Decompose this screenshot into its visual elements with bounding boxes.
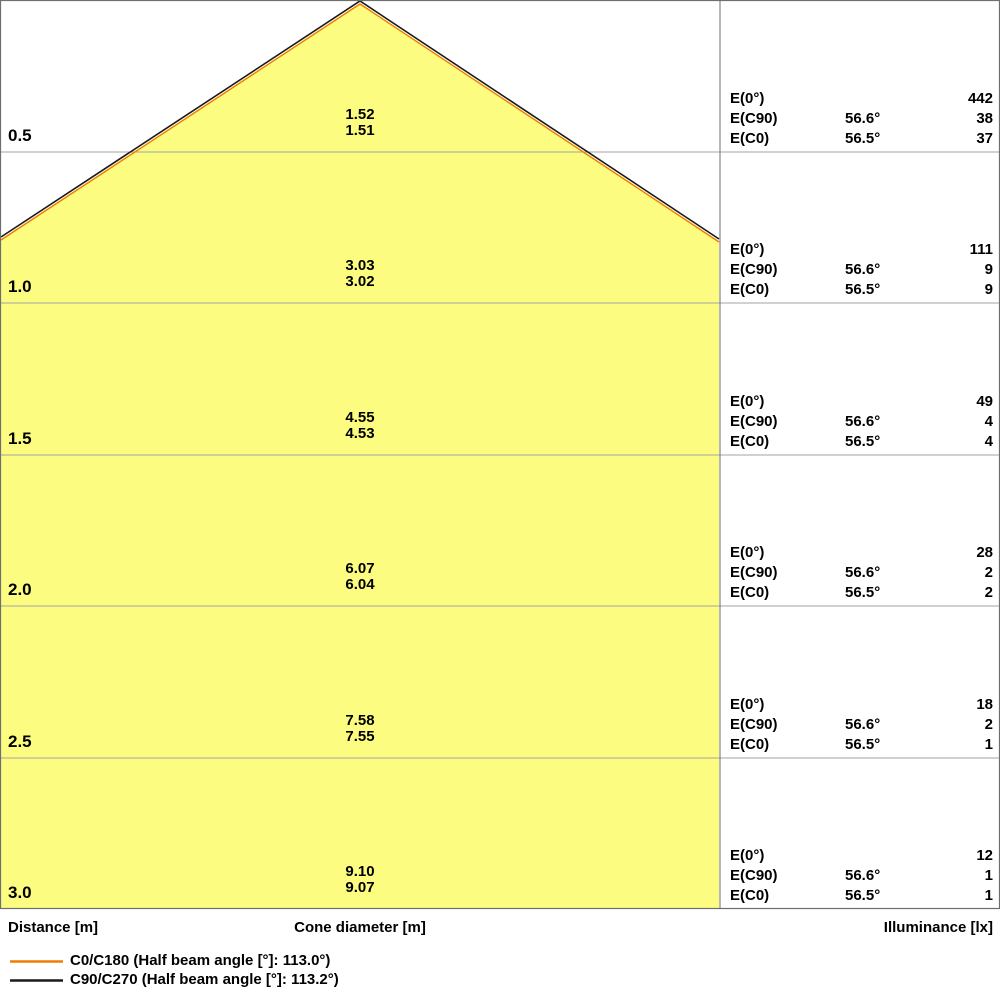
illuminance-label: E(C0) bbox=[730, 583, 769, 603]
cone-diameter-c90: 6.07 bbox=[260, 561, 460, 577]
illuminance-block: E(0°) 12 E(C90) 56.6° 1 E(C0) 56.5° 1 bbox=[730, 846, 993, 906]
illuminance-label: E(0°) bbox=[730, 89, 764, 109]
illuminance-value: 1 bbox=[985, 735, 993, 755]
cone-diameter-c0: 3.02 bbox=[260, 274, 460, 290]
distance-label: 2.0 bbox=[8, 580, 32, 600]
illuminance-row: E(0°) 442 bbox=[730, 89, 993, 109]
illuminance-row: E(C90) 56.6° 38 bbox=[730, 109, 993, 129]
illuminance-row: E(0°) 12 bbox=[730, 846, 993, 866]
illuminance-value: 9 bbox=[985, 260, 993, 280]
illuminance-angle: 56.5° bbox=[845, 583, 880, 603]
illuminance-block: E(0°) 18 E(C90) 56.6° 2 E(C0) 56.5° 1 bbox=[730, 695, 993, 755]
illuminance-angle: 56.6° bbox=[845, 563, 880, 583]
illuminance-label: E(C90) bbox=[730, 260, 778, 280]
illuminance-label: E(C90) bbox=[730, 412, 778, 432]
illuminance-angle: 56.6° bbox=[845, 412, 880, 432]
illuminance-label: E(0°) bbox=[730, 543, 764, 563]
illuminance-row: E(0°) 49 bbox=[730, 392, 993, 412]
illuminance-label: E(0°) bbox=[730, 846, 764, 866]
illuminance-value: 1 bbox=[985, 886, 993, 906]
legend-line-c0-c180 bbox=[10, 960, 63, 963]
illuminance-angle: 56.5° bbox=[845, 886, 880, 906]
illuminance-row: E(C90) 56.6° 2 bbox=[730, 715, 993, 735]
illuminance-value: 28 bbox=[976, 543, 993, 563]
illuminance-block: E(0°) 442 E(C90) 56.6° 38 E(C0) 56.5° 37 bbox=[730, 89, 993, 149]
distance-label: 2.5 bbox=[8, 732, 32, 752]
cone-diameter-c0: 4.53 bbox=[260, 426, 460, 442]
illuminance-value: 38 bbox=[976, 109, 993, 129]
illuminance-label: E(0°) bbox=[730, 392, 764, 412]
illuminance-value: 4 bbox=[985, 432, 993, 452]
illuminance-row: E(0°) 18 bbox=[730, 695, 993, 715]
cone-diameter-values: 9.10 9.07 bbox=[260, 864, 460, 896]
illuminance-row: E(C0) 56.5° 37 bbox=[730, 129, 993, 149]
illuminance-value: 4 bbox=[985, 412, 993, 432]
illuminance-row: E(C0) 56.5° 4 bbox=[730, 432, 993, 452]
light-cone-diagram: 0.5 1.52 1.51 E(0°) 442 E(C90) 56.6° 38 … bbox=[0, 0, 1000, 1000]
illuminance-label: E(C0) bbox=[730, 735, 769, 755]
illuminance-label: E(C0) bbox=[730, 129, 769, 149]
illuminance-angle: 56.5° bbox=[845, 129, 880, 149]
illuminance-row: E(C0) 56.5° 2 bbox=[730, 583, 993, 603]
cone-diameter-c90: 3.03 bbox=[260, 258, 460, 274]
illuminance-value: 2 bbox=[985, 563, 993, 583]
cone-diameter-c0: 6.04 bbox=[260, 577, 460, 593]
illuminance-block: E(0°) 111 E(C90) 56.6° 9 E(C0) 56.5° 9 bbox=[730, 240, 993, 300]
cone-diameter-values: 7.58 7.55 bbox=[260, 713, 460, 745]
illuminance-value: 442 bbox=[968, 89, 993, 109]
illuminance-label: E(C90) bbox=[730, 109, 778, 129]
illuminance-angle: 56.6° bbox=[845, 260, 880, 280]
illuminance-row: E(0°) 111 bbox=[730, 240, 993, 260]
illuminance-value: 12 bbox=[976, 846, 993, 866]
distance-label: 3.0 bbox=[8, 883, 32, 903]
illuminance-angle: 56.5° bbox=[845, 280, 880, 300]
illuminance-row: E(C0) 56.5° 1 bbox=[730, 735, 993, 755]
illuminance-angle: 56.5° bbox=[845, 735, 880, 755]
illuminance-block: E(0°) 49 E(C90) 56.6° 4 E(C0) 56.5° 4 bbox=[730, 392, 993, 452]
illuminance-angle: 56.6° bbox=[845, 109, 880, 129]
illuminance-row: E(C90) 56.6° 1 bbox=[730, 866, 993, 886]
legend-label-c90-c270: C90/C270 (Half beam angle [°]: 113.2°) bbox=[70, 971, 339, 989]
cone-diameter-values: 4.55 4.53 bbox=[260, 410, 460, 442]
illuminance-label: E(0°) bbox=[730, 240, 764, 260]
illuminance-row: E(C0) 56.5° 1 bbox=[730, 886, 993, 906]
illuminance-row: E(C0) 56.5° 9 bbox=[730, 280, 993, 300]
illuminance-label: E(C0) bbox=[730, 886, 769, 906]
illuminance-value: 37 bbox=[976, 129, 993, 149]
illuminance-label: E(C90) bbox=[730, 866, 778, 886]
illuminance-label: E(C0) bbox=[730, 432, 769, 452]
illuminance-angle: 56.6° bbox=[845, 715, 880, 735]
cone-diameter-c90: 4.55 bbox=[260, 410, 460, 426]
illuminance-axis-label: Illuminance [lx] bbox=[884, 919, 993, 937]
illuminance-row: E(C90) 56.6° 2 bbox=[730, 563, 993, 583]
illuminance-label: E(C0) bbox=[730, 280, 769, 300]
illuminance-value: 1 bbox=[985, 866, 993, 886]
illuminance-label: E(0°) bbox=[730, 695, 764, 715]
cone-diameter-c0: 9.07 bbox=[260, 880, 460, 896]
distance-axis-label: Distance [m] bbox=[8, 919, 98, 937]
illuminance-value: 18 bbox=[976, 695, 993, 715]
cone-diameter-values: 1.52 1.51 bbox=[260, 107, 460, 139]
illuminance-row: E(C90) 56.6° 4 bbox=[730, 412, 993, 432]
illuminance-value: 111 bbox=[970, 240, 993, 260]
distance-label: 1.0 bbox=[8, 277, 32, 297]
cone-diameter-axis-label: Cone diameter [m] bbox=[260, 919, 460, 937]
illuminance-angle: 56.6° bbox=[845, 866, 880, 886]
distance-label: 0.5 bbox=[8, 126, 32, 146]
illuminance-value: 9 bbox=[985, 280, 993, 300]
illuminance-value: 2 bbox=[985, 715, 993, 735]
illuminance-angle: 56.5° bbox=[845, 432, 880, 452]
legend-line-c90-c270 bbox=[10, 979, 63, 982]
cone-diameter-c0: 1.51 bbox=[260, 123, 460, 139]
illuminance-row: E(0°) 28 bbox=[730, 543, 993, 563]
legend-label-c0-c180: C0/C180 (Half beam angle [°]: 113.0°) bbox=[70, 952, 330, 970]
illuminance-value: 49 bbox=[976, 392, 993, 412]
distance-label: 1.5 bbox=[8, 429, 32, 449]
illuminance-label: E(C90) bbox=[730, 715, 778, 735]
illuminance-block: E(0°) 28 E(C90) 56.6° 2 E(C0) 56.5° 2 bbox=[730, 543, 993, 603]
cone-diameter-c90: 7.58 bbox=[260, 713, 460, 729]
illuminance-label: E(C90) bbox=[730, 563, 778, 583]
illuminance-value: 2 bbox=[985, 583, 993, 603]
illuminance-row: E(C90) 56.6° 9 bbox=[730, 260, 993, 280]
cone-diameter-values: 3.03 3.02 bbox=[260, 258, 460, 290]
cone-diameter-c90: 9.10 bbox=[260, 864, 460, 880]
cone-diameter-c0: 7.55 bbox=[260, 729, 460, 745]
cone-diameter-c90: 1.52 bbox=[260, 107, 460, 123]
cone-diameter-values: 6.07 6.04 bbox=[260, 561, 460, 593]
